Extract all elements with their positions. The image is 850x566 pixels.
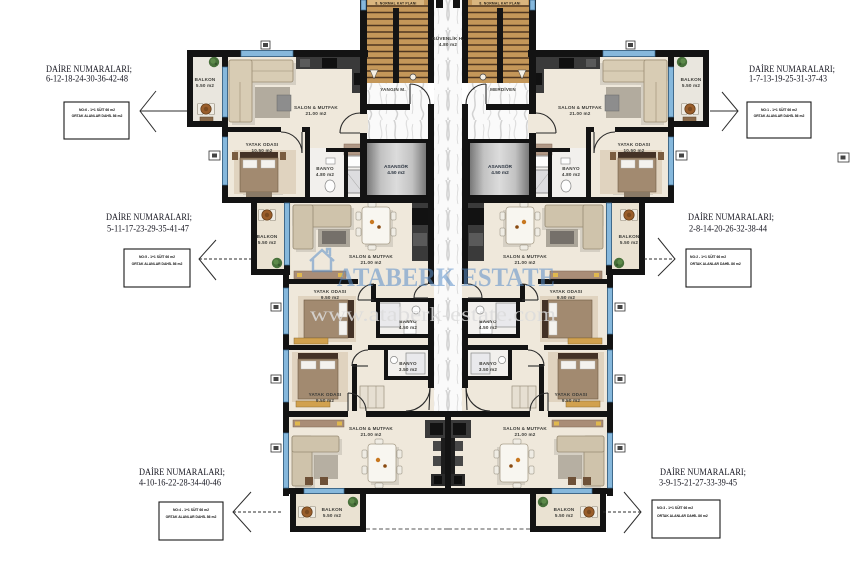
svg-text:BALKON: BALKON — [681, 77, 702, 82]
svg-text:8. NORMAL KAT PLANI: 8. NORMAL KAT PLANI — [479, 2, 520, 6]
svg-text:9.50 m2: 9.50 m2 — [562, 398, 581, 403]
svg-text:SALON & MUTFAK: SALON & MUTFAK — [558, 105, 602, 110]
svg-text:5-11-17-23-29-35-41-47: 5-11-17-23-29-35-41-47 — [107, 224, 189, 234]
svg-text:3.50 m2: 3.50 m2 — [479, 367, 498, 372]
svg-text:4.80 m2: 4.80 m2 — [439, 42, 458, 47]
svg-text:ORTAK ALANLAR DAHİL 86 m2: ORTAK ALANLAR DAHİL 86 m2 — [132, 262, 183, 266]
svg-text:NO:4 - 1+1 SÜİT 66 m2: NO:4 - 1+1 SÜİT 66 m2 — [173, 507, 209, 512]
svg-text:ASANSÖR: ASANSÖR — [488, 163, 513, 170]
svg-text:4.50 m2: 4.50 m2 — [491, 170, 509, 176]
svg-text:4.50 m2: 4.50 m2 — [387, 170, 405, 176]
svg-text:NO:1 - 1+1 SÜİT 66 m2: NO:1 - 1+1 SÜİT 66 m2 — [761, 107, 797, 112]
svg-text:5.50 m2: 5.50 m2 — [620, 240, 639, 245]
svg-text:10.50 m2: 10.50 m2 — [251, 148, 272, 153]
svg-text:NO:6 - 1+1 SÜİT 66 m2: NO:6 - 1+1 SÜİT 66 m2 — [79, 107, 115, 112]
svg-text:SALON & MUTFAK: SALON & MUTFAK — [503, 254, 547, 259]
svg-text:ORTAK ALANLAR DAHİL 86 m2: ORTAK ALANLAR DAHİL 86 m2 — [72, 114, 123, 118]
svg-text:DAİRE NUMARALARI;: DAİRE NUMARALARI; — [106, 211, 192, 223]
svg-text:SALON & MUTFAK: SALON & MUTFAK — [349, 254, 393, 259]
svg-text:YATAK ODASI: YATAK ODASI — [309, 392, 342, 397]
svg-text:BALKON: BALKON — [257, 234, 278, 239]
svg-text:SALON & MUTFAK: SALON & MUTFAK — [503, 426, 547, 431]
svg-text:4.80 m2: 4.80 m2 — [316, 172, 335, 177]
svg-text:5.50 m2: 5.50 m2 — [258, 240, 277, 245]
svg-text:6-12-18-24-30-36-42-48: 6-12-18-24-30-36-42-48 — [46, 74, 128, 84]
svg-text:BANYO: BANYO — [316, 166, 334, 171]
svg-text:DAİRE NUMARALARI;: DAİRE NUMARALARI; — [139, 466, 225, 478]
svg-text:YANGIN M.: YANGIN M. — [380, 87, 406, 92]
svg-text:21.00 m2: 21.00 m2 — [305, 111, 326, 116]
svg-text:3.50 m2: 3.50 m2 — [399, 367, 418, 372]
svg-text:5.50 m2: 5.50 m2 — [555, 513, 574, 518]
svg-text:BALKON: BALKON — [195, 77, 216, 82]
svg-text:9.50 m2: 9.50 m2 — [557, 295, 576, 300]
svg-text:9.50 m2: 9.50 m2 — [321, 295, 340, 300]
svg-text:DAİRE NUMARALARI;: DAİRE NUMARALARI; — [688, 211, 774, 223]
svg-text:5.50 m2: 5.50 m2 — [323, 513, 342, 518]
svg-text:ORTAK ALANLAR DAHİL 86 m2: ORTAK ALANLAR DAHİL 86 m2 — [690, 262, 741, 266]
svg-text:YATAK ODASI: YATAK ODASI — [246, 142, 279, 147]
svg-text:8. NORMAL KAT PLANI: 8. NORMAL KAT PLANI — [375, 2, 416, 6]
svg-text:ORTAK ALANLAR DAHİL 86 m2: ORTAK ALANLAR DAHİL 86 m2 — [166, 515, 217, 519]
svg-text:3-9-15-21-27-33-39-45: 3-9-15-21-27-33-39-45 — [659, 478, 737, 488]
svg-text:BALKON: BALKON — [322, 507, 343, 512]
svg-text:BANYO: BANYO — [479, 361, 497, 366]
svg-text:YATAK ODASI: YATAK ODASI — [618, 142, 651, 147]
svg-text:10.50 m2: 10.50 m2 — [623, 148, 644, 153]
svg-text:21.00 m2: 21.00 m2 — [569, 111, 590, 116]
svg-text:BANYO: BANYO — [562, 166, 580, 171]
svg-text:4-10-16-22-28-34-40-46: 4-10-16-22-28-34-40-46 — [139, 478, 221, 488]
svg-text:NO:3 - 1+1 SÜİT 66 m2: NO:3 - 1+1 SÜİT 66 m2 — [657, 505, 693, 510]
svg-text:ORTAK ALANLAR DAHİL 86 m2: ORTAK ALANLAR DAHİL 86 m2 — [754, 114, 805, 118]
svg-text:1-7-13-19-25-31-37-43: 1-7-13-19-25-31-37-43 — [749, 74, 827, 84]
svg-text:21.00 m2: 21.00 m2 — [360, 432, 381, 437]
svg-text:ORTAK ALANLAR DAHİL 86 m2: ORTAK ALANLAR DAHİL 86 m2 — [657, 514, 708, 518]
svg-text:SALON & MUTFAK: SALON & MUTFAK — [349, 426, 393, 431]
svg-text:5.50 m2: 5.50 m2 — [196, 83, 215, 88]
svg-text:BANYO: BANYO — [399, 361, 417, 366]
svg-text:GÜVENLİK H.: GÜVENLİK H. — [432, 35, 464, 41]
svg-text:ATABERK ESTATE: ATABERK ESTATE — [337, 263, 555, 292]
svg-text:NO:2 - 1+1 SÜİT 66 m2: NO:2 - 1+1 SÜİT 66 m2 — [690, 254, 726, 259]
svg-text:2-8-14-20-26-32-38-44: 2-8-14-20-26-32-38-44 — [689, 224, 767, 234]
svg-text:5.50 m2: 5.50 m2 — [682, 83, 701, 88]
svg-text:www.ataberk-estate.com: www.ataberk-estate.com — [310, 304, 557, 326]
svg-text:BALKON: BALKON — [554, 507, 575, 512]
svg-text:ASANSÖR: ASANSÖR — [384, 163, 409, 170]
svg-text:BALKON: BALKON — [619, 234, 640, 239]
svg-text:9.50 m2: 9.50 m2 — [316, 398, 335, 403]
svg-text:4.80 m2: 4.80 m2 — [562, 172, 581, 177]
svg-text:YATAK ODASI: YATAK ODASI — [555, 392, 588, 397]
svg-text:21.00 m2: 21.00 m2 — [514, 432, 535, 437]
svg-text:MERDİVEN: MERDİVEN — [490, 86, 516, 92]
svg-text:DAİRE NUMARALARI;: DAİRE NUMARALARI; — [660, 466, 746, 478]
svg-text:SALON & MUTFAK: SALON & MUTFAK — [294, 105, 338, 110]
svg-text:NO:5 - 1+1 SÜİT 66 m2: NO:5 - 1+1 SÜİT 66 m2 — [139, 254, 175, 259]
